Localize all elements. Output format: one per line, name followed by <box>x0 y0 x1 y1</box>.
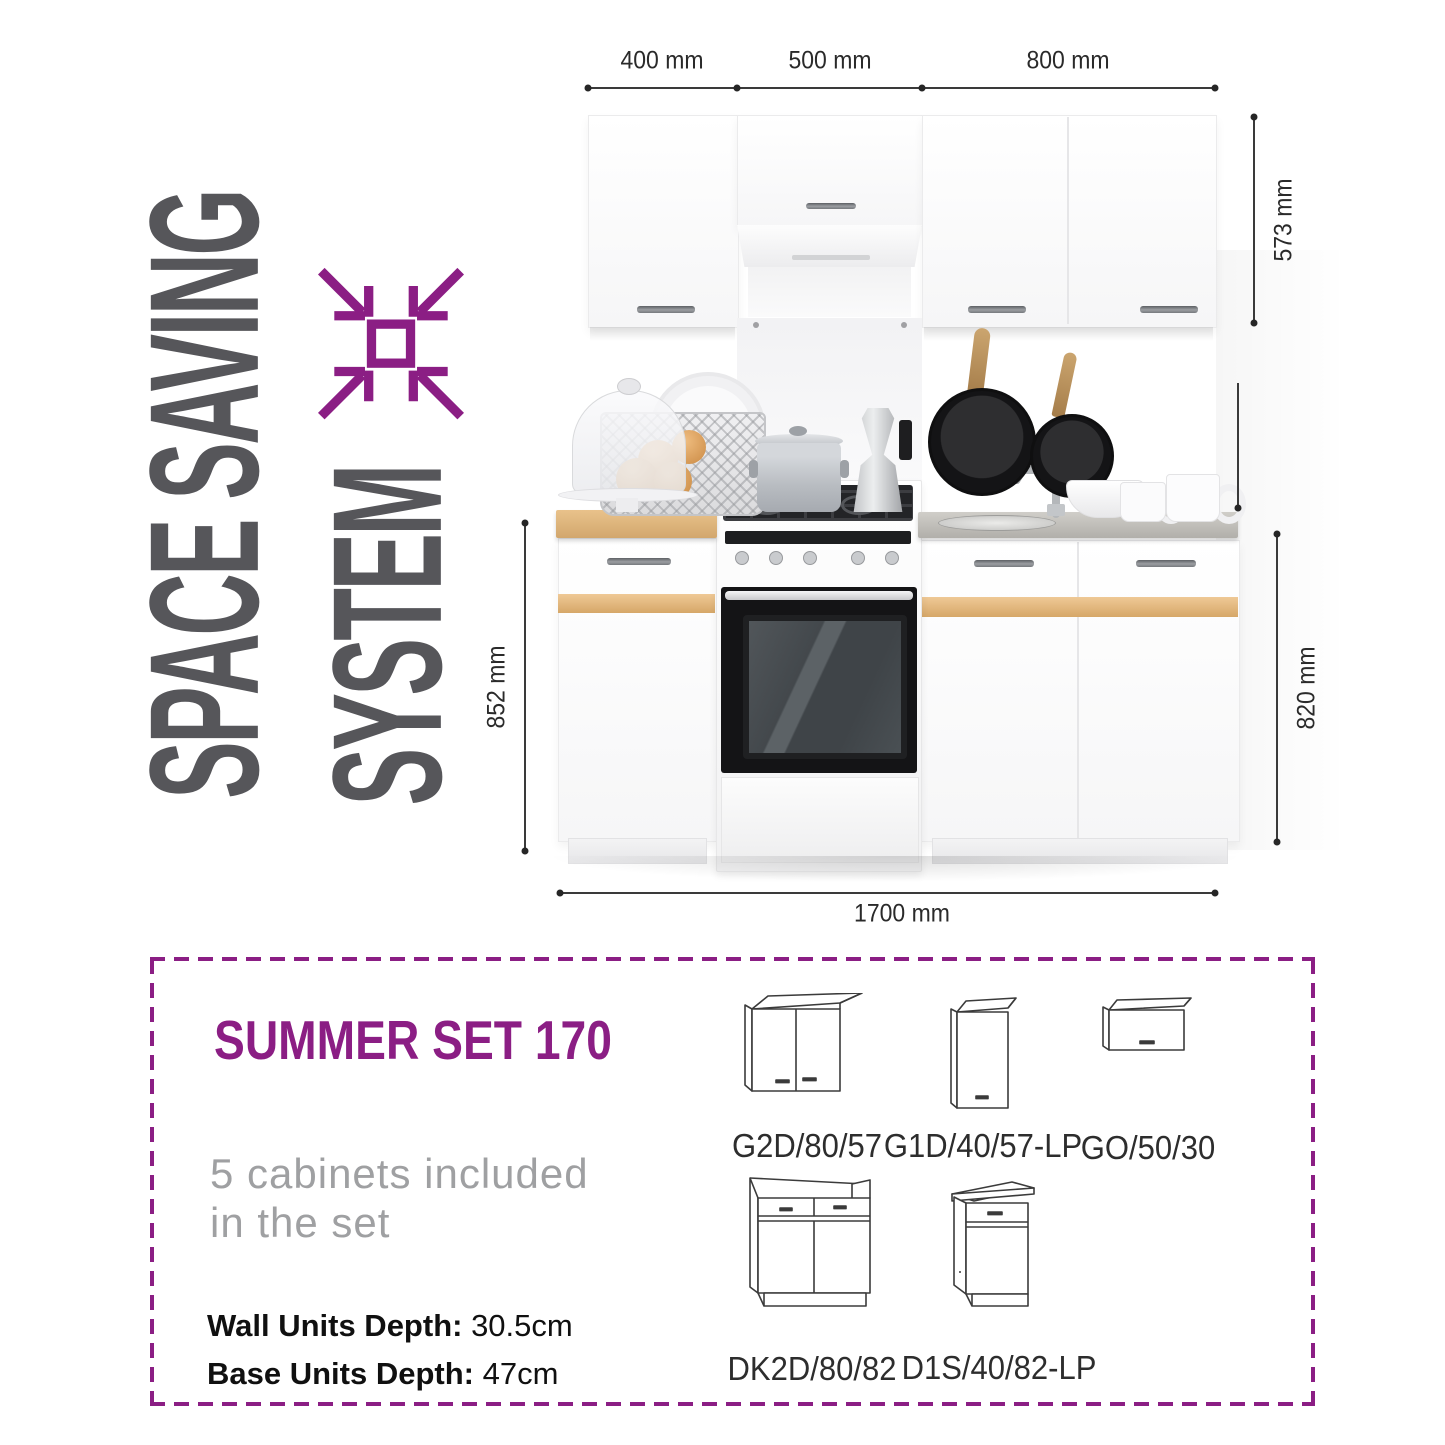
cake-dome-knob <box>617 378 641 395</box>
cabinet-drawing-go-50-30 <box>1100 996 1194 1056</box>
dim-label-820: 820 mm <box>1293 646 1322 729</box>
dim-line-573 <box>1253 117 1255 323</box>
shadow-under-right-cabinet <box>924 327 1213 341</box>
wall-cabinet-mid-handle <box>806 203 856 209</box>
spec-base-units-label: Base Units Depth: <box>207 1356 474 1391</box>
cooker-hood-canopy <box>737 225 922 267</box>
base-cabinet-right-seam <box>1077 542 1079 838</box>
dim-dot <box>1274 839 1281 846</box>
mug-1 <box>1120 482 1166 522</box>
dim-dot <box>557 890 564 897</box>
moka-kettle-handle <box>899 420 912 460</box>
cabinet-label-g2d: G2D/80/57 <box>732 1127 882 1165</box>
panel-border-left <box>150 957 154 1406</box>
kitchen-photo: 400 mm 500 mm 800 mm 573 mm 820 mm 852 m… <box>0 0 1445 945</box>
splashback-screw-left <box>753 322 759 328</box>
cabinet-drawing-g1d-40-57-lp <box>948 996 1022 1116</box>
dim-dot <box>1251 320 1258 327</box>
dim-dot <box>1251 114 1258 121</box>
dim-leader-line <box>1237 383 1239 508</box>
dim-line-top <box>588 87 1215 89</box>
shadow-under-left-cabinet <box>590 327 735 341</box>
base-cabinet-right <box>920 540 1240 842</box>
dim-dot <box>1212 890 1219 897</box>
dim-dot <box>1235 505 1242 512</box>
wall-cabinet-left <box>588 115 739 328</box>
cabinet-label-g1d: G1D/40/57-LP <box>884 1127 1082 1165</box>
dim-line-820 <box>1276 534 1278 842</box>
stove-knob-4 <box>851 551 865 565</box>
pot-lid-knob <box>789 426 807 436</box>
dim-dot <box>1274 531 1281 538</box>
base-cabinet-left-oak-strip <box>558 594 715 613</box>
stove-knob-1 <box>735 551 749 565</box>
cooker-hood-body <box>748 267 911 317</box>
wall-cabinet-right-seam <box>1067 117 1069 324</box>
splashback-screw-right <box>901 322 907 328</box>
pan-small-handle <box>1051 351 1077 418</box>
pot-handle-right <box>840 460 849 478</box>
dim-dot <box>734 85 741 92</box>
panel-border-right <box>1311 957 1315 1406</box>
stove-storage-drawer <box>721 777 919 863</box>
pot <box>757 443 841 512</box>
base-cabinet-right-drawer-handle-1 <box>974 560 1034 567</box>
panel-subtitle-line1: 5 cabinets included <box>210 1150 589 1198</box>
dim-dot <box>522 848 529 855</box>
spec-base-units: Base Units Depth: 47cm <box>207 1356 558 1392</box>
stove-knob-5 <box>885 551 899 565</box>
wall-cabinet-left-handle <box>637 306 695 313</box>
dim-dot <box>585 85 592 92</box>
cabinet-label-go: GO/50/30 <box>1081 1129 1216 1167</box>
page: SPACE SAVING SYSTEM <box>0 0 1445 1445</box>
pot-handle-left <box>749 460 758 478</box>
panel-border-bottom <box>150 1402 1315 1406</box>
base-cabinet-right-drawer-handle-2 <box>1136 560 1196 567</box>
oven-window <box>743 615 907 759</box>
dim-label-573: 573 mm <box>1270 178 1299 261</box>
stove-control-strip <box>725 531 911 544</box>
mug-2 <box>1166 474 1220 522</box>
cabinet-label-dk2d: DK2D/80/82 <box>728 1350 897 1388</box>
pan-large <box>928 388 1036 496</box>
dim-label-852: 852 mm <box>483 645 512 728</box>
wall-cabinet-mid-flip <box>737 115 924 227</box>
dim-dot <box>1212 85 1219 92</box>
spec-wall-units-label: Wall Units Depth: <box>207 1308 462 1343</box>
wall-cabinet-right-handle-2 <box>1140 306 1198 313</box>
wall-cabinet-right-handle-1 <box>968 306 1026 313</box>
cabinet-drawing-dk2d-80-82 <box>744 1176 876 1312</box>
dim-dot <box>919 85 926 92</box>
stove <box>716 480 922 872</box>
oven-door <box>721 587 917 773</box>
dim-label-1700: 1700 mm <box>854 900 950 929</box>
spec-wall-units-value: 30.5cm <box>462 1308 572 1343</box>
cabinet-drawing-d1s-40-82-lp <box>946 1176 1036 1312</box>
dim-line-1700 <box>560 892 1215 894</box>
stove-knob-2 <box>769 551 783 565</box>
dim-dot <box>522 520 529 527</box>
base-cabinet-left-drawer-handle <box>607 558 671 565</box>
panel-subtitle-line2: in the set <box>210 1199 390 1247</box>
cabinet-label-d1s: D1S/40/82-LP <box>902 1349 1097 1387</box>
oven-door-handle <box>725 591 913 600</box>
floor-shadow <box>545 856 1245 882</box>
stove-knob-3 <box>803 551 817 565</box>
dim-label-400: 400 mm <box>620 47 703 76</box>
cabinet-drawing-g2d-80-57 <box>740 993 875 1118</box>
spec-base-units-value: 47cm <box>474 1356 558 1391</box>
panel-border-top <box>150 957 1315 961</box>
cooker-hood-handle <box>792 255 870 260</box>
cake-dome <box>572 390 686 494</box>
base-cabinet-left <box>558 538 717 842</box>
base-cabinet-right-oak-strip <box>920 597 1238 617</box>
dim-label-500: 500 mm <box>788 47 871 76</box>
dim-line-852 <box>524 523 526 851</box>
cake-stand-stem <box>616 498 638 512</box>
spec-wall-units: Wall Units Depth: 30.5cm <box>207 1308 573 1344</box>
wall-cabinet-right <box>922 115 1217 328</box>
panel-title: SUMMER SET 170 <box>214 1008 612 1072</box>
dim-label-800: 800 mm <box>1026 47 1109 76</box>
